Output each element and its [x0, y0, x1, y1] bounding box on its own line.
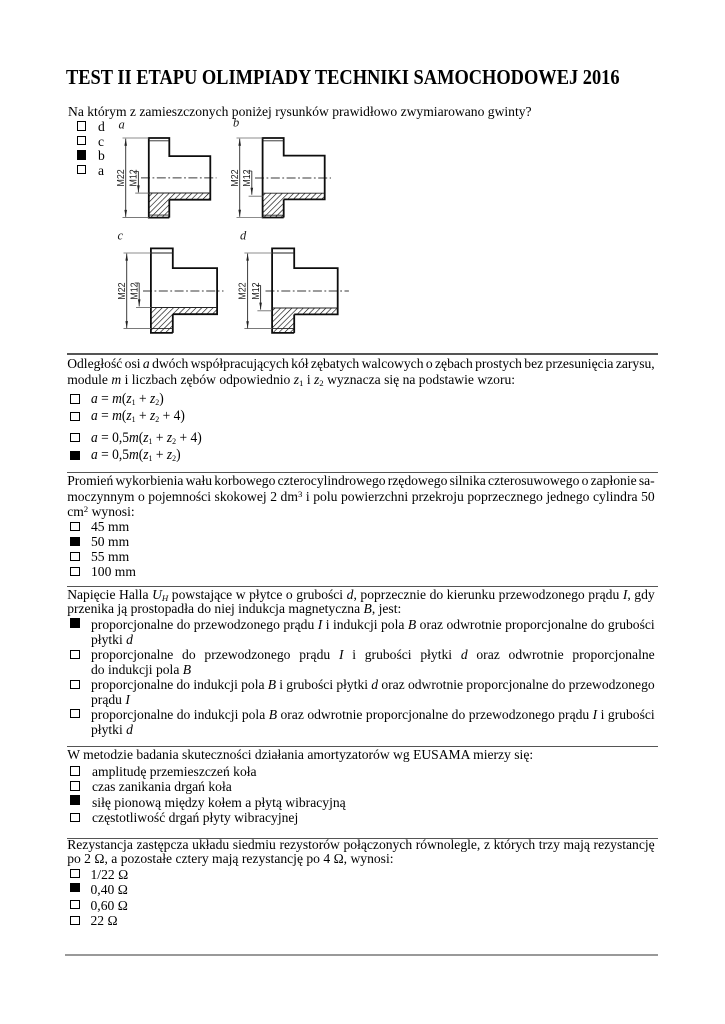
svg-text:b: b: [233, 116, 239, 130]
svg-text:M12: M12: [251, 282, 262, 299]
svg-text:M22: M22: [238, 282, 249, 299]
svg-text:a: a: [119, 118, 125, 132]
svg-text:c: c: [118, 229, 124, 243]
svg-text:M12: M12: [129, 169, 140, 186]
svg-text:M12: M12: [130, 282, 141, 299]
svg-text:M22: M22: [117, 282, 128, 299]
svg-text:d: d: [240, 229, 247, 243]
svg-text:M22: M22: [230, 169, 241, 186]
svg-text:M12: M12: [242, 169, 253, 186]
svg-text:M22: M22: [116, 169, 127, 186]
